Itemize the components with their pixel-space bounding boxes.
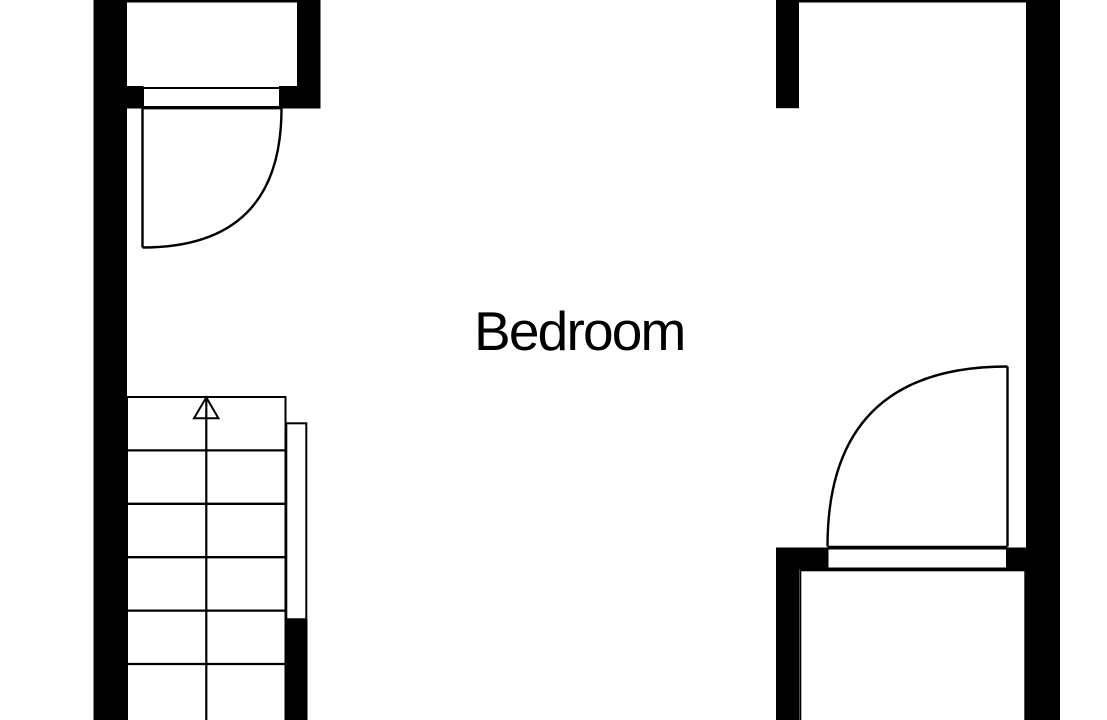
svg-text:Bedroom: Bedroom: [474, 300, 685, 362]
